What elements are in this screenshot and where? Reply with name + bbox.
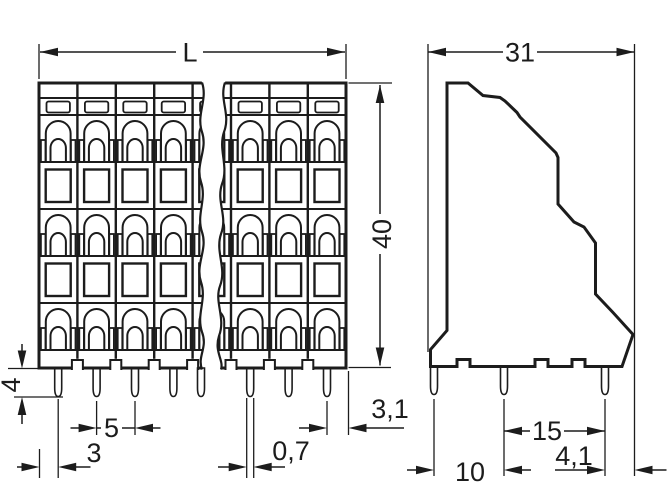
dim-label-3-1: 3,1 <box>371 394 409 424</box>
dim-overall-width-L: L <box>40 38 345 68</box>
dim-label-L: L <box>182 38 197 68</box>
pole-separators <box>77 85 307 367</box>
side-view <box>431 83 634 395</box>
front-view <box>39 79 346 397</box>
dim-label-10: 10 <box>455 457 485 487</box>
technical-drawing: L 40 4 5 <box>0 0 672 496</box>
housing-side-profile <box>431 83 634 367</box>
dim-label-5: 5 <box>104 413 119 443</box>
dim-label-40: 40 <box>367 219 397 249</box>
technical-drawing-canvas: L 40 4 5 <box>0 0 672 496</box>
extension-lines <box>8 44 635 478</box>
front-pins <box>55 368 331 397</box>
dim-label-0-7: 0,7 <box>272 436 310 466</box>
dim-label-31: 31 <box>505 38 535 68</box>
dim-overall-depth-31: 31 <box>428 38 635 68</box>
dim-label-4: 4 <box>0 377 26 392</box>
dim-label-3: 3 <box>86 438 101 468</box>
side-pins <box>431 366 609 395</box>
dim-offset-3: 3 <box>17 438 102 471</box>
dim-10: 10 <box>407 457 531 487</box>
dim-pitch-5: 5 <box>71 413 161 443</box>
dimensions: L 40 4 5 <box>0 38 667 488</box>
dim-pin-length-4: 4 <box>0 344 26 424</box>
dim-height-40: 40 <box>367 85 397 366</box>
dim-4-1: 4,1 <box>555 441 667 474</box>
dim-label-4-1: 4,1 <box>555 441 593 471</box>
dim-offset-3-1: 3,1 <box>299 394 409 432</box>
break-lines <box>199 79 226 373</box>
dim-pin-width-0-7: 0,7 <box>218 436 310 471</box>
